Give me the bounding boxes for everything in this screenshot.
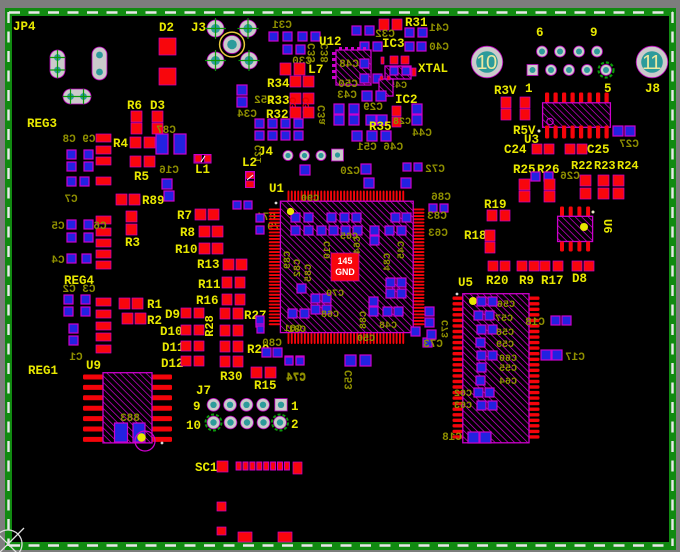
svg-text:IC3: IC3 [382,37,405,51]
svg-text:C63: C63 [428,228,448,240]
svg-text:C27: C27 [619,139,639,151]
svg-text:R24: R24 [617,159,639,173]
svg-text:C57: C57 [495,314,513,325]
svg-text:145: 145 [338,256,353,266]
svg-text:C3a: C3a [317,105,329,125]
svg-text:R89: R89 [142,194,165,208]
svg-text:U1: U1 [269,182,284,196]
svg-text:L1: L1 [195,163,210,177]
svg-text:R8: R8 [180,226,195,240]
svg-text:U6: U6 [600,219,614,233]
svg-text:XTAL: XTAL [418,62,448,76]
svg-text:C18: C18 [525,317,545,329]
svg-text:R10: R10 [175,243,198,257]
svg-text:D9: D9 [165,308,180,322]
svg-text:1: 1 [525,82,533,96]
svg-text:R7: R7 [177,209,192,223]
svg-text:REG3: REG3 [27,117,57,131]
svg-text:C70: C70 [326,289,344,300]
svg-text:U9: U9 [86,359,101,373]
svg-text:C29: C29 [363,102,383,114]
svg-text:C1: C1 [69,352,83,364]
svg-text:C48: C48 [339,59,359,71]
svg-text:C9 C8: C9 C8 [62,134,95,146]
svg-text:6: 6 [536,26,544,40]
svg-text:U12: U12 [319,35,342,49]
svg-text:R34: R34 [267,77,290,91]
svg-text:C46 C51: C46 C51 [357,142,404,154]
svg-text:C89: C89 [283,251,294,269]
svg-text:C63: C63 [454,401,472,412]
svg-text:C88: C88 [359,311,370,329]
svg-text:R20: R20 [486,274,509,288]
svg-text:C48: C48 [379,321,397,332]
svg-text:C59: C59 [496,340,514,351]
svg-text:2: 2 [291,418,299,432]
svg-text:C45: C45 [397,241,408,259]
svg-text:C31: C31 [272,20,292,32]
svg-text:C73: C73 [441,320,452,338]
svg-text:R23: R23 [594,159,616,173]
svg-text:D12: D12 [161,357,184,371]
svg-text:C74: C74 [286,373,306,385]
svg-text:C43: C43 [337,90,357,102]
svg-text:C28: C28 [393,117,411,128]
svg-text:C41: C41 [429,23,449,35]
svg-text:D2: D2 [159,21,174,35]
svg-text:R16: R16 [196,294,219,308]
svg-text:9: 9 [193,400,201,414]
svg-text:R4: R4 [113,137,129,151]
svg-text:C64: C64 [353,236,364,254]
svg-text:REG1: REG1 [28,364,58,378]
svg-text:C5: C5 [51,221,65,233]
svg-text:11: 11 [642,52,661,74]
svg-text:J7: J7 [196,384,211,398]
svg-text:R3: R3 [125,236,140,250]
svg-text:R13: R13 [197,258,220,272]
svg-text:C82: C82 [293,259,304,277]
svg-text:C18: C18 [442,432,462,444]
svg-text:C73: C73 [423,339,443,351]
svg-text:C56: C56 [497,300,515,311]
svg-text:C72: C72 [425,164,445,176]
svg-text:C40: C40 [429,42,449,54]
svg-text:R33: R33 [267,94,290,108]
svg-text:R3V: R3V [494,84,517,98]
svg-text:1: 1 [291,400,299,414]
svg-text:C62: C62 [454,389,472,400]
svg-text:R18: R18 [464,229,487,243]
svg-text:C34: C34 [237,109,257,121]
svg-text:9: 9 [590,26,598,40]
svg-text:C7: C7 [64,194,77,206]
svg-text:C64: C64 [499,377,517,388]
svg-text:L2: L2 [242,156,257,170]
svg-text:C24: C24 [504,143,527,157]
svg-text:SC1: SC1 [195,461,218,475]
svg-text:C6: C6 [93,221,106,233]
svg-text:R17: R17 [541,274,564,288]
svg-text:JP4: JP4 [13,20,36,34]
svg-text:D8: D8 [572,272,587,286]
svg-text:10: 10 [476,52,497,74]
svg-text:L7: L7 [308,62,324,77]
svg-text:U5: U5 [458,276,473,290]
svg-text:C50: C50 [357,334,375,345]
svg-text:C4: C4 [51,255,65,267]
svg-text:R11: R11 [198,278,221,292]
svg-text:C25: C25 [587,143,610,157]
svg-text:C17: C17 [565,352,585,364]
svg-text:R30: R30 [220,370,243,384]
svg-text:R9: R9 [519,274,534,288]
svg-text:C86: C86 [431,192,451,204]
svg-text:C85: C85 [304,264,315,282]
svg-text:D10: D10 [160,325,183,339]
svg-text:C53: C53 [344,370,356,390]
svg-text:C58: C58 [496,328,514,339]
svg-text:R28: R28 [203,315,217,337]
svg-text:R1: R1 [147,298,162,312]
svg-text:R15: R15 [254,379,277,393]
svg-text:10: 10 [186,419,201,433]
svg-text:C55: C55 [499,364,517,375]
svg-text:GND: GND [335,267,355,277]
svg-text:J3: J3 [191,21,206,35]
svg-text:R5: R5 [134,170,149,184]
svg-text:C83: C83 [427,211,447,223]
svg-text:C90: C90 [301,194,319,205]
svg-text:C10: C10 [323,241,334,259]
svg-text:C16: C16 [159,165,179,177]
svg-text:C20: C20 [340,166,360,178]
svg-text:C3 C2: C3 C2 [62,284,95,296]
svg-text:C81: C81 [288,325,306,336]
svg-text:C84: C84 [383,253,394,271]
svg-text:C44: C44 [412,128,432,140]
svg-text:C68: C68 [321,310,339,321]
svg-text:C26: C26 [560,171,580,183]
svg-text:J8: J8 [645,82,660,96]
